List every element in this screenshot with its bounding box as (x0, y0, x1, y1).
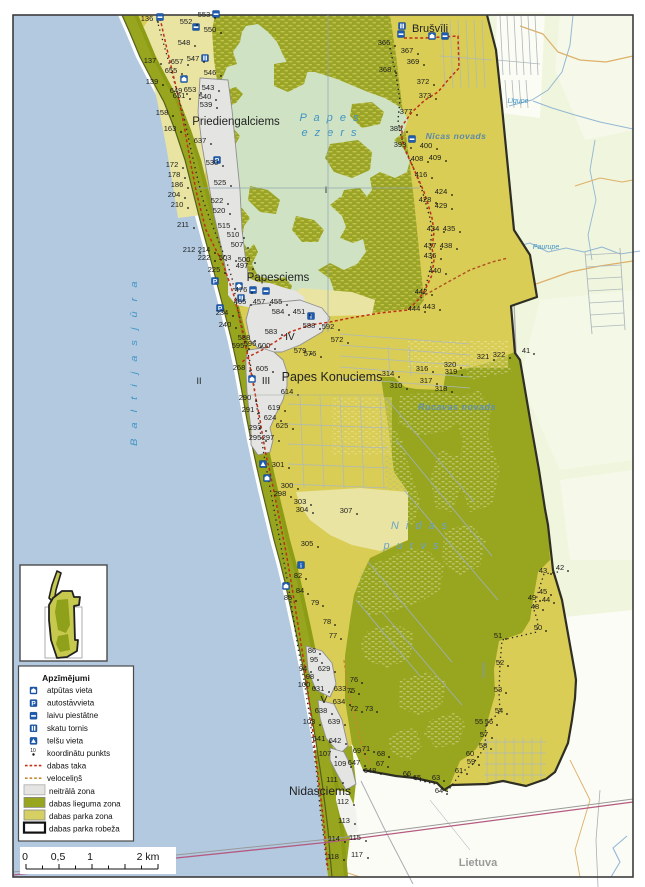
svg-text:318: 318 (435, 384, 448, 393)
svg-text:600: 600 (258, 341, 271, 350)
svg-text:373: 373 (419, 91, 432, 100)
svg-text:veloceliņš: veloceliņš (47, 774, 82, 783)
svg-text:atpūtas vieta: atpūtas vieta (47, 686, 93, 695)
svg-text:78: 78 (323, 617, 331, 626)
svg-text:547: 547 (187, 54, 200, 63)
svg-text:112: 112 (337, 797, 349, 806)
svg-text:550: 550 (204, 25, 217, 34)
svg-text:P: P (31, 701, 36, 708)
svg-text:Lietuva: Lietuva (459, 857, 498, 869)
svg-text:II: II (196, 376, 201, 386)
svg-text:I: I (325, 185, 328, 195)
svg-text:V: V (321, 695, 328, 706)
svg-text:50: 50 (534, 623, 542, 632)
svg-text:614: 614 (281, 387, 294, 396)
svg-text:515: 515 (218, 221, 231, 230)
svg-text:59: 59 (467, 757, 475, 766)
svg-text:178: 178 (168, 170, 181, 179)
svg-text:619: 619 (268, 403, 281, 412)
svg-text:647: 647 (348, 758, 361, 767)
svg-text:212: 212 (183, 245, 196, 254)
svg-text:44: 44 (542, 595, 550, 604)
svg-text:634: 634 (333, 697, 346, 706)
svg-text:61: 61 (455, 766, 463, 775)
svg-text:409: 409 (429, 153, 442, 162)
svg-text:136: 136 (141, 14, 154, 23)
svg-text:438: 438 (440, 241, 453, 250)
svg-text:N i d a s: N i d a s (391, 520, 449, 532)
svg-text:e z e r s: e z e r s (301, 127, 358, 139)
svg-text:Papesciems: Papesciems (247, 272, 310, 284)
svg-text:75: 75 (347, 686, 355, 695)
svg-text:372: 372 (417, 77, 430, 86)
svg-text:444: 444 (408, 304, 421, 313)
svg-text:B a l t i j a s j ū r a: B a l t i j a s j ū r a (129, 278, 140, 446)
svg-text:186: 186 (171, 180, 184, 189)
svg-text:IV: IV (285, 332, 295, 343)
svg-text:305: 305 (301, 539, 314, 548)
svg-text:84: 84 (296, 586, 304, 595)
svg-text:546: 546 (204, 68, 217, 77)
svg-text:584: 584 (272, 307, 285, 316)
svg-text:548: 548 (178, 38, 191, 47)
svg-text:465: 465 (234, 297, 247, 306)
svg-text:p u r v s: p u r v s (382, 540, 440, 552)
svg-text:322: 322 (493, 350, 506, 359)
svg-text:109: 109 (334, 759, 347, 768)
svg-text:telšu vieta: telšu vieta (47, 736, 84, 745)
svg-text:497: 497 (236, 261, 249, 270)
svg-text:0,5: 0,5 (51, 851, 66, 863)
svg-text:60: 60 (466, 749, 474, 758)
svg-text:52: 52 (496, 658, 504, 667)
svg-text:neitrālā zona: neitrālā zona (49, 787, 95, 796)
svg-text:72: 72 (350, 704, 358, 713)
svg-text:49: 49 (528, 593, 536, 602)
svg-text:103: 103 (303, 717, 316, 726)
svg-text:58: 58 (479, 741, 487, 750)
svg-text:Apzīmējumi: Apzīmējumi (42, 673, 90, 683)
svg-text:638: 638 (315, 706, 328, 715)
svg-text:42: 42 (556, 563, 564, 572)
svg-text:317: 317 (420, 376, 433, 385)
svg-text:588: 588 (303, 321, 316, 330)
svg-text:605: 605 (256, 364, 269, 373)
svg-text:434: 434 (427, 224, 440, 233)
svg-text:2 km: 2 km (137, 851, 160, 863)
svg-text:71: 71 (362, 744, 370, 753)
svg-text:297: 297 (262, 433, 275, 442)
svg-text:dabas parka robeža: dabas parka robeža (49, 825, 120, 834)
svg-text:530: 530 (206, 158, 219, 167)
svg-text:639: 639 (328, 717, 341, 726)
svg-text:641: 641 (313, 734, 326, 743)
svg-text:451: 451 (293, 307, 306, 316)
svg-text:240: 240 (219, 320, 232, 329)
svg-text:520: 520 (213, 206, 226, 215)
svg-text:210: 210 (171, 200, 184, 209)
svg-text:211: 211 (177, 220, 189, 229)
svg-text:429: 429 (435, 201, 448, 210)
svg-text:298: 298 (274, 489, 287, 498)
svg-text:Brušvīli: Brušvīli (412, 23, 448, 35)
svg-text:57: 57 (480, 730, 488, 739)
svg-text:293: 293 (249, 423, 262, 432)
svg-text:503: 503 (219, 253, 232, 262)
svg-text:222: 222 (198, 253, 211, 262)
svg-text:424: 424 (435, 187, 448, 196)
svg-text:64: 64 (435, 786, 443, 795)
svg-text:Nidasciems: Nidasciems (289, 784, 351, 798)
svg-text:653: 653 (184, 85, 197, 94)
svg-text:Rucavas novads: Rucavas novads (418, 402, 496, 412)
svg-text:10: 10 (30, 748, 36, 754)
svg-text:319: 319 (445, 367, 458, 376)
svg-text:54: 54 (495, 706, 503, 715)
svg-text:117: 117 (351, 850, 363, 859)
svg-text:95: 95 (310, 655, 318, 664)
svg-text:skatu tornis: skatu tornis (47, 724, 88, 733)
svg-text:43: 43 (539, 566, 547, 575)
svg-text:455: 455 (270, 297, 283, 306)
svg-text:234: 234 (216, 308, 229, 317)
svg-text:366: 366 (378, 38, 391, 47)
svg-text:82: 82 (294, 571, 302, 580)
svg-text:314: 314 (382, 369, 395, 378)
svg-text:163: 163 (164, 124, 177, 133)
svg-text:637: 637 (194, 136, 207, 145)
svg-text:307: 307 (340, 506, 353, 515)
svg-text:139: 139 (146, 77, 159, 86)
svg-text:100: 100 (298, 680, 311, 689)
svg-text:290: 290 (239, 393, 252, 402)
svg-text:543: 543 (202, 83, 215, 92)
svg-text:657: 657 (171, 57, 184, 66)
svg-text:107: 107 (319, 749, 332, 758)
svg-text:55: 55 (475, 717, 483, 726)
svg-text:1: 1 (87, 851, 93, 863)
svg-text:651: 651 (173, 91, 186, 100)
svg-text:dabas taka: dabas taka (47, 762, 87, 771)
svg-text:172: 172 (166, 160, 179, 169)
svg-text:316: 316 (416, 364, 429, 373)
svg-text:dabas lieguma zona: dabas lieguma zona (49, 799, 121, 808)
svg-text:631: 631 (312, 684, 325, 693)
svg-text:79: 79 (311, 598, 319, 607)
svg-text:510: 510 (227, 230, 240, 239)
svg-text:625: 625 (276, 421, 289, 430)
svg-text:436: 436 (424, 251, 437, 260)
svg-text:476: 476 (235, 285, 248, 294)
svg-text:114: 114 (328, 834, 340, 843)
svg-text:596: 596 (244, 339, 257, 348)
svg-text:86: 86 (308, 646, 316, 655)
svg-text:Priediengalciems: Priediengalciems (192, 116, 280, 128)
svg-text:595: 595 (232, 341, 245, 350)
svg-text:69: 69 (353, 746, 361, 755)
svg-text:393: 393 (394, 140, 407, 149)
svg-text:385: 385 (390, 124, 403, 133)
svg-text:442: 442 (415, 287, 428, 296)
svg-text:310: 310 (390, 381, 403, 390)
svg-text:41: 41 (522, 346, 530, 355)
svg-text:367: 367 (401, 46, 414, 55)
svg-text:553: 553 (198, 10, 211, 19)
svg-text:118: 118 (327, 852, 339, 861)
svg-text:66: 66 (403, 769, 411, 778)
svg-text:115: 115 (349, 833, 361, 842)
svg-text:P: P (213, 279, 218, 286)
svg-text:51: 51 (494, 631, 502, 640)
svg-text:158: 158 (156, 108, 169, 117)
svg-text:Līgupe: Līgupe (507, 98, 528, 105)
svg-text:435: 435 (443, 224, 456, 233)
svg-text:56: 56 (485, 717, 493, 726)
svg-text:539: 539 (200, 100, 213, 109)
svg-text:295: 295 (249, 433, 262, 442)
svg-text:67: 67 (376, 759, 384, 768)
svg-text:laivu piestātne: laivu piestātne (47, 711, 99, 720)
svg-text:73: 73 (365, 704, 373, 713)
svg-text:48: 48 (531, 602, 539, 611)
svg-text:65: 65 (413, 773, 421, 782)
svg-text:76: 76 (350, 675, 358, 684)
svg-text:53: 53 (494, 685, 502, 694)
svg-text:400: 400 (420, 141, 433, 150)
svg-text:525: 525 (214, 178, 227, 187)
svg-text:321: 321 (477, 352, 490, 361)
svg-text:642: 642 (329, 736, 342, 745)
svg-text:522: 522 (211, 196, 224, 205)
svg-text:68: 68 (377, 749, 385, 758)
svg-text:648: 648 (364, 766, 377, 775)
svg-text:583: 583 (265, 327, 278, 336)
svg-text:629: 629 (318, 664, 331, 673)
svg-text:137: 137 (144, 56, 157, 65)
svg-text:204: 204 (168, 190, 181, 199)
svg-text:457: 457 (253, 297, 266, 306)
svg-text:369: 369 (407, 57, 420, 66)
svg-text:77: 77 (329, 631, 337, 640)
svg-text:440: 440 (429, 266, 442, 275)
svg-text:113: 113 (338, 816, 350, 825)
svg-text:koordinātu punkts: koordinātu punkts (47, 749, 110, 758)
svg-text:Paurupe: Paurupe (533, 244, 560, 251)
svg-text:443: 443 (423, 302, 436, 311)
svg-text:368: 368 (379, 65, 392, 74)
svg-text:P a p e s: P a p e s (299, 112, 360, 124)
svg-text:111: 111 (326, 775, 337, 784)
svg-text:Nīcas novads: Nīcas novads (426, 131, 487, 141)
svg-text:377: 377 (400, 107, 413, 116)
svg-text:0: 0 (22, 851, 28, 863)
svg-text:304: 304 (296, 505, 309, 514)
svg-text:301: 301 (272, 460, 285, 469)
svg-text:428: 428 (419, 195, 432, 204)
svg-text:572: 572 (331, 335, 344, 344)
svg-text:416: 416 (415, 170, 428, 179)
svg-text:408: 408 (411, 154, 424, 163)
svg-text:268: 268 (233, 363, 246, 372)
svg-text:291: 291 (242, 405, 255, 414)
svg-text:624: 624 (264, 413, 277, 422)
svg-text:655: 655 (165, 66, 178, 75)
svg-text:III: III (262, 376, 270, 387)
svg-text:85: 85 (284, 593, 292, 602)
svg-text:225: 225 (208, 265, 221, 274)
svg-text:63: 63 (432, 773, 440, 782)
svg-text:437: 437 (424, 241, 437, 250)
svg-text:dabas parka zona: dabas parka zona (49, 812, 113, 821)
svg-text:576: 576 (304, 349, 317, 358)
svg-text:552: 552 (180, 17, 193, 26)
svg-text:autostāvvieta: autostāvvieta (47, 699, 95, 708)
svg-text:Papes Konuciems: Papes Konuciems (282, 370, 383, 384)
svg-text:633: 633 (334, 684, 347, 693)
svg-text:507: 507 (231, 240, 244, 249)
